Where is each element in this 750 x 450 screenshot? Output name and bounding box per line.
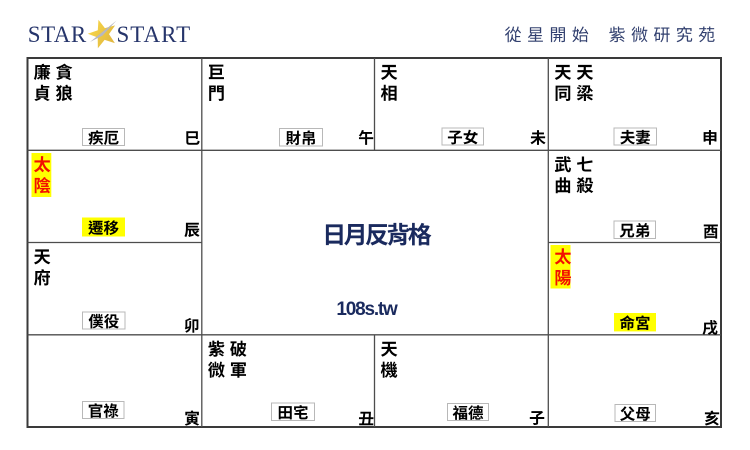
- svg-text:108s.tw: 108s.tw: [336, 299, 398, 320]
- svg-text:START: START: [117, 22, 192, 47]
- svg-text:STAR: STAR: [28, 22, 87, 47]
